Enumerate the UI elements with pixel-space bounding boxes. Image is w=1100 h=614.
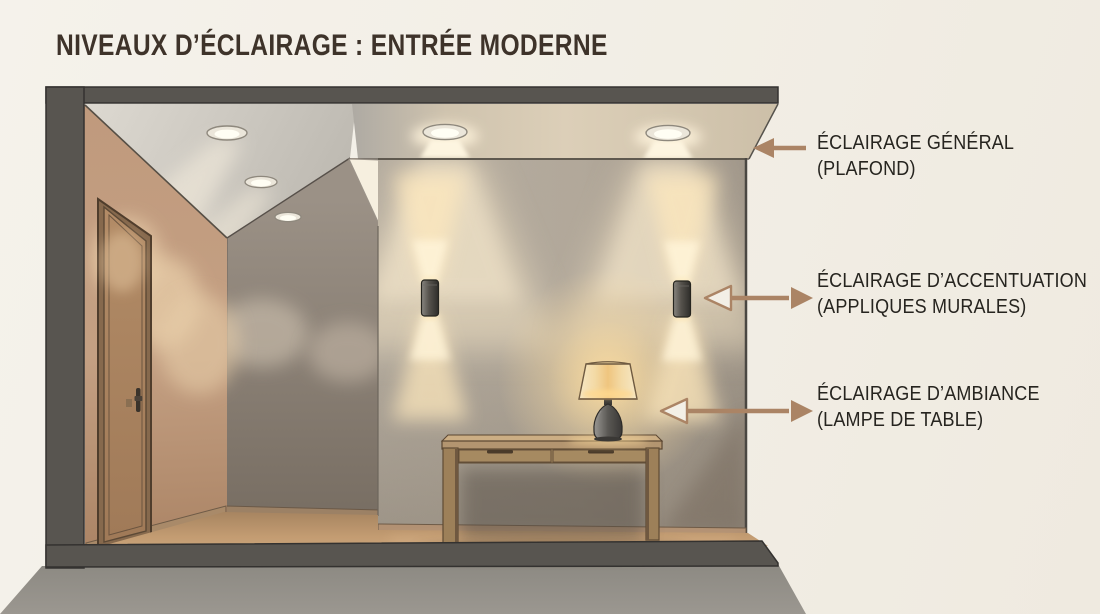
leader-arrow-accent xyxy=(705,286,813,310)
frame-top-slab xyxy=(46,87,778,103)
ceiling-soffit xyxy=(352,104,778,159)
downlight-corridor-3 xyxy=(275,212,301,221)
label-general-line2: (PLAFOND) xyxy=(817,156,1014,182)
label-accent-lighting: ÉCLAIRAGE D’ACCENTUATION (APPLIQUES MURA… xyxy=(817,268,1087,320)
frame-left-slab xyxy=(46,87,84,568)
label-ambiance-line2: (LAMPE DE TABLE) xyxy=(817,407,1040,433)
cast-shadow xyxy=(0,564,806,614)
label-general-lighting: ÉCLAIRAGE GÉNÉRAL (PLAFOND) xyxy=(817,130,1014,182)
downlight-soffit-2 xyxy=(646,125,690,140)
door-lock-plate xyxy=(126,399,132,407)
arrow-right-solid-icon xyxy=(791,400,813,422)
lamp-shade xyxy=(579,362,637,399)
label-ambiance-line1: ÉCLAIRAGE D’AMBIANCE xyxy=(817,381,1040,407)
page-title: NIVEAUX D’ÉCLAIRAGE : ENTRÉE MODERNE xyxy=(56,30,608,62)
door xyxy=(98,199,151,548)
drawer-notch-handle-left xyxy=(487,450,513,454)
label-accent-line2: (APPLIQUES MURALES) xyxy=(817,294,1087,320)
label-general-line1: ÉCLAIRAGE GÉNÉRAL xyxy=(817,130,1014,156)
label-accent-line1: ÉCLAIRAGE D’ACCENTUATION xyxy=(817,268,1087,294)
label-ambiance-lighting: ÉCLAIRAGE D’AMBIANCE (LAMPE DE TABLE) xyxy=(817,381,1040,433)
downlight-soffit-1 xyxy=(423,124,467,139)
downlight-corridor-2 xyxy=(245,176,277,187)
arrow-right-solid-icon xyxy=(791,287,813,309)
frame-bottom-slab xyxy=(46,541,778,567)
wall-sconce-right xyxy=(673,277,691,320)
downlight-corridor-1 xyxy=(207,126,247,140)
leader-arrow-general xyxy=(753,138,806,158)
drawer-notch-handle-right xyxy=(588,450,614,454)
wall-sconce-left xyxy=(421,276,439,319)
